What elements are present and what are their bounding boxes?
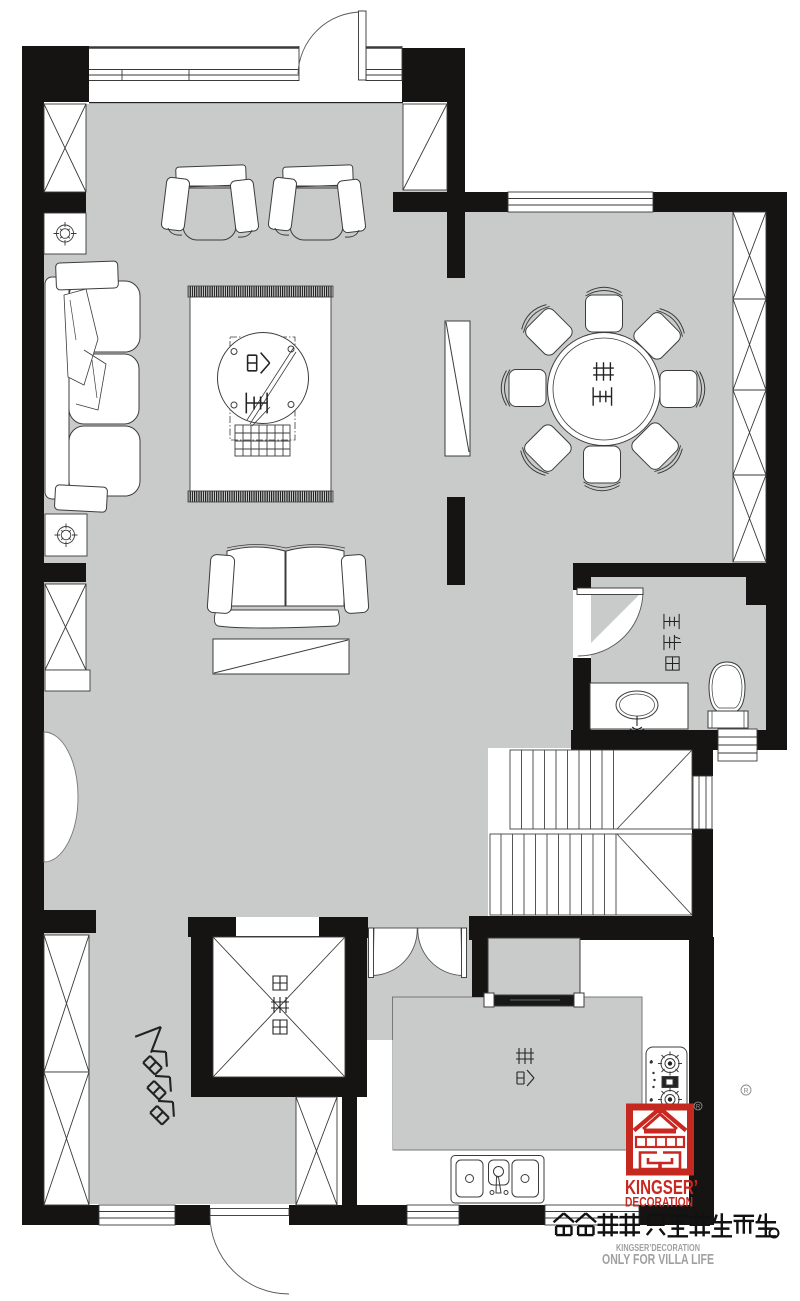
svg-text:DECORATION: DECORATION xyxy=(625,1195,693,1210)
svg-text:R: R xyxy=(696,1105,701,1111)
svg-text:ONLY FOR VILLA LIFE: ONLY FOR VILLA LIFE xyxy=(602,1252,714,1268)
svg-text:R: R xyxy=(743,1088,748,1095)
